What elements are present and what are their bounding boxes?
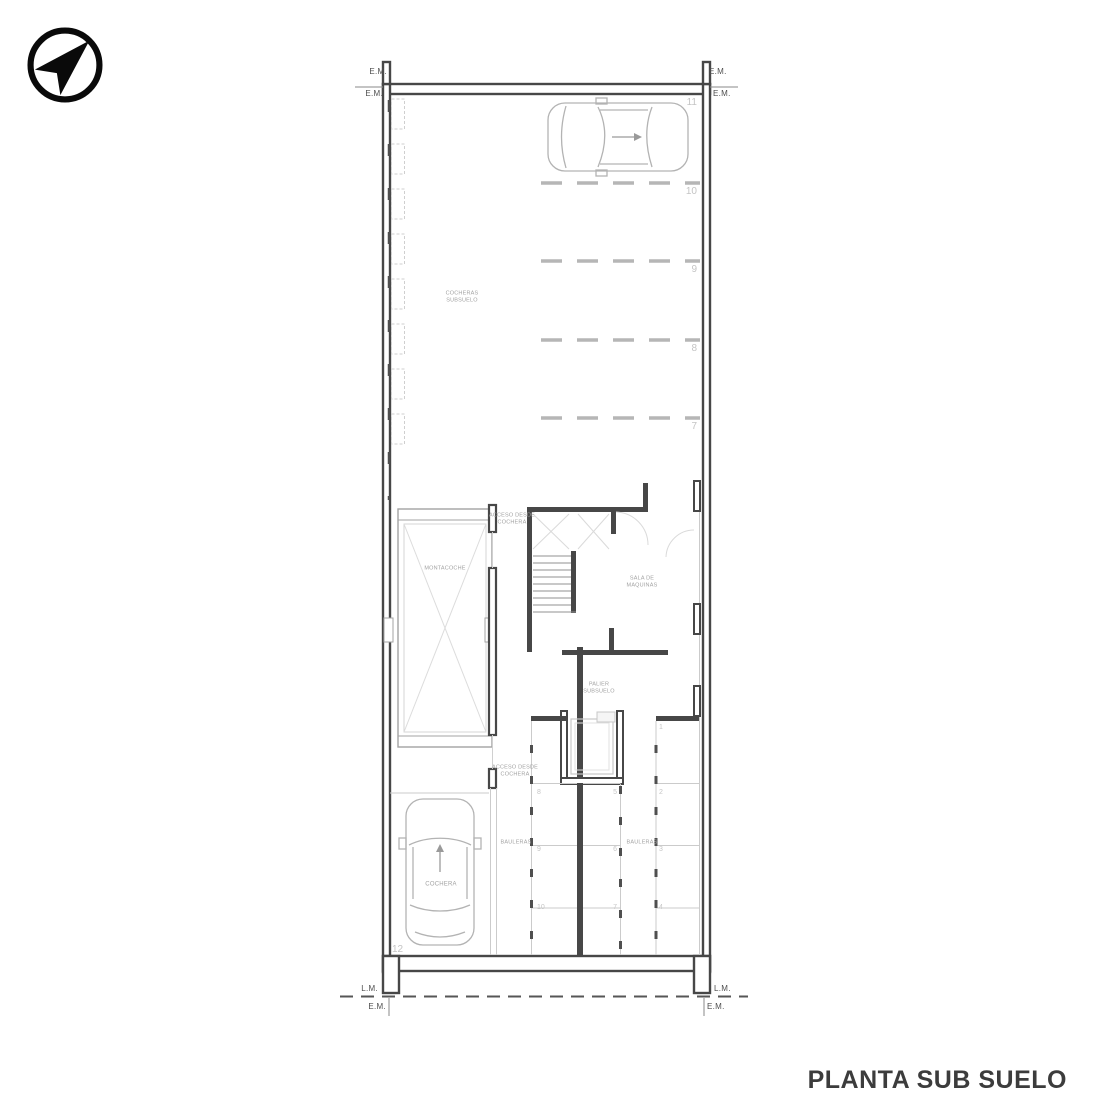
montacoche-block (384, 509, 493, 747)
elevator-shaft (561, 711, 623, 784)
plan-title: PLANTA SUB SUELO (808, 1066, 1067, 1095)
car-bottom (399, 799, 481, 945)
em-label-top-left-outer: E.M. (361, 67, 387, 76)
em-label-top-right-inner: E.M. (713, 89, 731, 98)
baulera-number-7: 7 (603, 904, 617, 911)
parking-number-9: 9 (675, 264, 697, 275)
parking-number-7: 7 (675, 421, 697, 432)
baulera-number-5: 5 (603, 789, 617, 796)
baulera-number-8: 8 (537, 789, 541, 796)
room-label-bauleras-right: BAULERAS (627, 840, 658, 847)
parking-dividers (541, 183, 700, 418)
room-label-sala-maquinas: SALA DE MAQUINAS (627, 575, 658, 588)
baulera-number-2: 2 (659, 789, 663, 796)
baulera-number-1: 1 (659, 724, 663, 731)
em-label-bottom-right: E.M. (707, 1002, 725, 1011)
parking-number-8: 8 (675, 343, 697, 354)
lm-label-bottom-left: L.M. (352, 984, 378, 993)
parking-number-11: 11 (675, 97, 697, 108)
baulera-number-10: 10 (537, 904, 545, 911)
em-label-bottom-left: E.M. (360, 1002, 386, 1011)
room-label-montacoche: MONTACOCHE (424, 566, 465, 573)
room-label-palier: PALIER SUBSUELO (583, 681, 615, 694)
baulera-number-6: 6 (603, 846, 617, 853)
room-label-acceso-top: ACCESO DESDE COCHERA (489, 512, 535, 525)
floor-plan-drawing (0, 0, 1100, 1100)
room-label-acceso-bottom: ACCESO DESDE COCHERA (492, 764, 538, 777)
em-label-top-left-inner: E.M. (357, 89, 383, 98)
parking-number-10: 10 (675, 186, 697, 197)
baulera-number-3: 3 (659, 846, 663, 853)
stair-treads (533, 556, 576, 612)
baulera-number-9: 9 (537, 846, 541, 853)
room-label-bauleras-left: BAULERAS (501, 840, 532, 847)
car-top (548, 98, 688, 176)
lm-label-bottom-right: L.M. (714, 984, 731, 993)
room-label-cocheras: COCHERAS SUBSUELO (446, 290, 479, 303)
em-label-top-right-outer: E.M. (709, 67, 727, 76)
left-wall-niches (392, 99, 405, 444)
parking-number-12: 12 (392, 944, 403, 955)
floor-plan-canvas: E.M. E.M. E.M. E.M. L.M. L.M. E.M. E.M. … (0, 0, 1100, 1100)
room-label-cochera: COCHERA (425, 881, 456, 888)
baulera-number-4: 4 (659, 904, 663, 911)
